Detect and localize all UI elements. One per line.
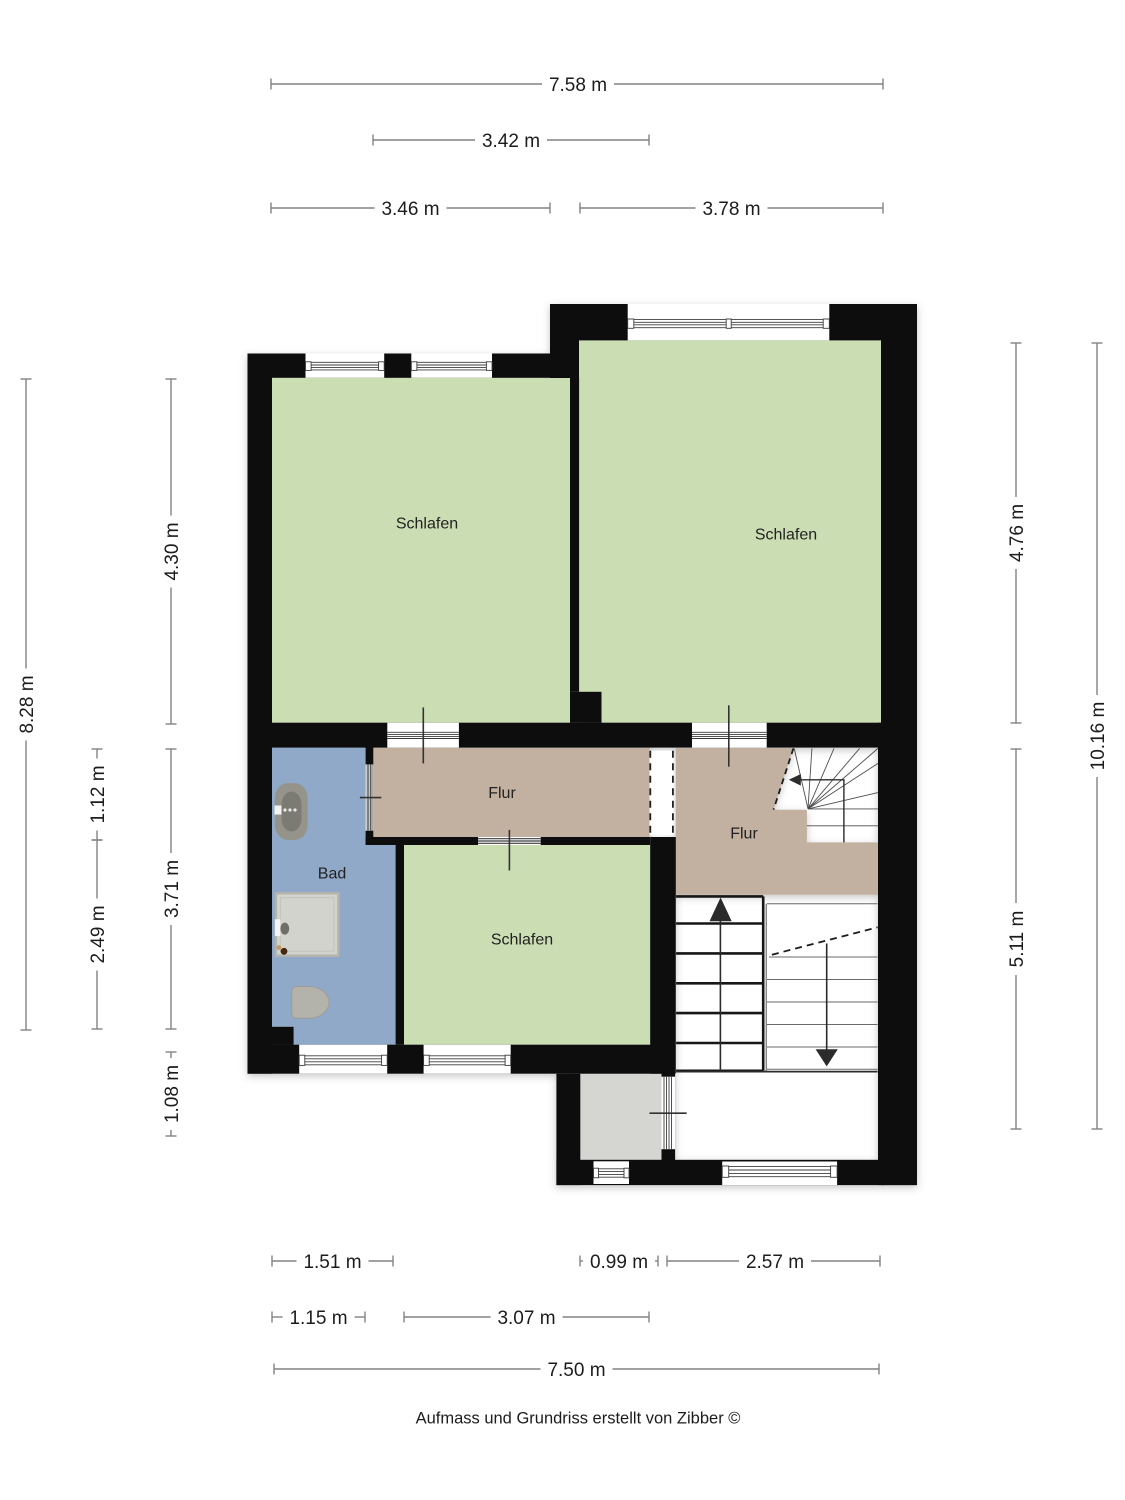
svg-text:8.28 m: 8.28 m <box>17 675 38 733</box>
svg-text:Schlafen: Schlafen <box>755 527 817 544</box>
svg-text:1.15 m: 1.15 m <box>289 1308 347 1329</box>
svg-text:10.16 m: 10.16 m <box>1088 702 1109 771</box>
svg-text:2.49 m: 2.49 m <box>88 905 109 963</box>
svg-text:Schlafen: Schlafen <box>396 516 458 533</box>
svg-text:Flur: Flur <box>488 785 516 802</box>
svg-text:1.12 m: 1.12 m <box>88 765 109 823</box>
svg-text:7.50 m: 7.50 m <box>547 1360 605 1381</box>
svg-text:3.42 m: 3.42 m <box>482 131 540 152</box>
svg-text:1.51 m: 1.51 m <box>303 1252 361 1273</box>
svg-text:1.08 m: 1.08 m <box>162 1065 183 1123</box>
svg-text:0.99 m: 0.99 m <box>590 1252 648 1273</box>
svg-text:4.76 m: 4.76 m <box>1007 504 1028 562</box>
svg-text:2.57 m: 2.57 m <box>746 1252 804 1273</box>
svg-text:3.71 m: 3.71 m <box>162 860 183 918</box>
svg-text:Flur: Flur <box>730 826 758 843</box>
svg-text:4.30 m: 4.30 m <box>162 522 183 580</box>
svg-text:Schlafen: Schlafen <box>491 932 553 949</box>
svg-text:3.46 m: 3.46 m <box>381 199 439 220</box>
svg-text:Bad: Bad <box>318 866 346 883</box>
svg-text:3.78 m: 3.78 m <box>702 199 760 220</box>
svg-text:7.58 m: 7.58 m <box>549 75 607 96</box>
svg-text:5.11 m: 5.11 m <box>1007 911 1028 968</box>
svg-text:Aufmass und Grundriss erstellt: Aufmass und Grundriss erstellt von Zibbe… <box>416 1410 741 1428</box>
svg-text:3.07 m: 3.07 m <box>497 1308 555 1329</box>
